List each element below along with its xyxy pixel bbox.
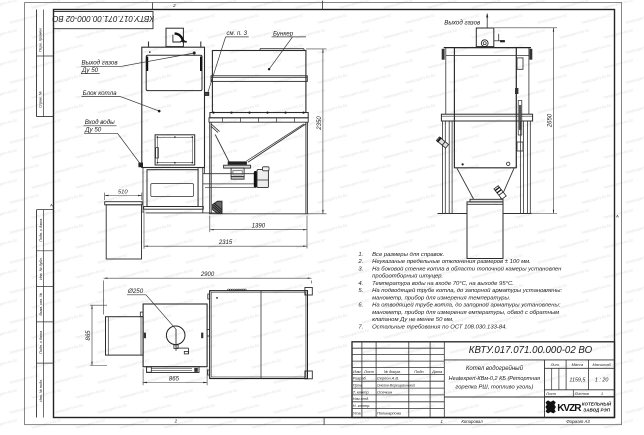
svg-text:Инв. № дубл.: Инв. № дубл. <box>39 257 43 280</box>
svg-text:Ду 50: Ду 50 <box>84 127 102 134</box>
svg-text:Т. контр.: Т. контр. <box>353 389 370 394</box>
svg-text:Остальные требования по ОСТ 10: Остальные требования по ОСТ 108.030.133-… <box>372 325 507 331</box>
svg-text:2350: 2350 <box>317 116 323 131</box>
svg-text:КВТУ.017.071.00.000-02 ВО: КВТУ.017.071.00.000-02 ВО <box>52 14 154 23</box>
svg-text:1 : 20: 1 : 20 <box>595 378 609 384</box>
svg-text:Все размеры для справок.: Все размеры для справок. <box>372 252 444 258</box>
svg-text:манометр, прибор для измерения: манометр, прибор для измерения температу… <box>372 295 510 301</box>
svg-text:Лист: Лист <box>545 391 557 396</box>
svg-text:Разраб.: Разраб. <box>353 376 367 381</box>
svg-text:1159,5: 1159,5 <box>569 378 586 384</box>
svg-text:Формат А3: Формат А3 <box>566 419 590 424</box>
svg-text:На отводящей трубе котла, до з: На отводящей трубе котла, до запорной ар… <box>372 302 561 309</box>
svg-text:Ду 50: Ду 50 <box>81 67 99 74</box>
svg-text:Осечкин: Осечкин <box>377 389 393 394</box>
svg-text:Лист: Лист <box>363 369 375 374</box>
svg-text:Листов: Листов <box>574 391 589 396</box>
svg-text:Подп. и дата: Подп. и дата <box>39 331 43 354</box>
svg-text:Вход воды: Вход воды <box>85 119 115 126</box>
svg-text:3.: 3. <box>358 266 363 272</box>
svg-text:А: А <box>50 203 53 208</box>
svg-text:клапаном Ду не менее 50 мм.: клапаном Ду не менее 50 мм. <box>372 317 454 323</box>
svg-text:Масштаб: Масштаб <box>593 362 612 367</box>
svg-text:На подводящей трубе котла, до: На подводящей трубе котла, до запорной а… <box>372 287 562 294</box>
svg-text:Пров.: Пров. <box>353 383 363 388</box>
svg-text:510: 510 <box>118 189 128 195</box>
svg-text:Бункер: Бункер <box>273 30 294 37</box>
svg-text:Неуказаные предельные отклонен: Неуказаные предельные отклонения размеро… <box>372 259 531 265</box>
svg-text:см. п. 3: см. п. 3 <box>227 31 248 37</box>
svg-text:Онегов-Верещагинский: Онегов-Верещагинский <box>377 384 415 388</box>
svg-text:пробоотборный штуцер.: пробоотборный штуцер. <box>372 273 443 280</box>
svg-text:Выход газов: Выход газов <box>444 20 481 27</box>
svg-text:Подп. и дата: Подп. и дата <box>39 219 43 242</box>
svg-text:2900: 2900 <box>200 272 215 278</box>
svg-text:Температура воды на входе 70°С: Температура воды на входе 70°С, на выход… <box>372 281 514 287</box>
svg-text:1.: 1. <box>358 252 363 258</box>
svg-text:Масса: Масса <box>572 362 584 367</box>
svg-text:Подп.: Подп. <box>414 369 424 374</box>
svg-text:Копировал: Копировал <box>461 419 483 424</box>
svg-text:2.: 2. <box>357 259 363 265</box>
svg-text:Изм: Изм <box>353 369 361 374</box>
svg-text:Heatexpert-КВм-0,2 КБ (Ретортн: Heatexpert-КВм-0,2 КБ (Ретортная <box>449 376 541 382</box>
svg-text:Инв. № подл.: Инв. № подл. <box>39 379 43 402</box>
svg-text:4.: 4. <box>358 281 363 287</box>
svg-text:Поликарпова: Поликарпова <box>377 411 402 416</box>
svg-text:Выход газов: Выход газов <box>82 59 119 66</box>
svg-text:Взам. инв. №: Взам. инв. № <box>39 293 43 316</box>
svg-text:КОТЕЛЬНЫЙ: КОТЕЛЬНЫЙ <box>582 399 612 406</box>
svg-text:2315: 2315 <box>218 240 233 246</box>
svg-text:KVZR: KVZR <box>557 403 582 414</box>
svg-text:Ø250: Ø250 <box>127 288 144 295</box>
svg-text:№ докум.: № докум. <box>384 369 401 374</box>
svg-text:На боковой стенке котла в обла: На боковой стенке котла в области топочн… <box>372 265 562 272</box>
svg-text:Н. контр.: Н. контр. <box>353 403 371 408</box>
svg-text:7.: 7. <box>358 325 363 331</box>
svg-text:горелка РШ, топливо уголь): горелка РШ, топливо уголь) <box>455 385 533 391</box>
svg-text:манометр, прибор для измерения: манометр, прибор для измерения емператур… <box>372 310 559 316</box>
svg-text:Перв. примен.: Перв. примен. <box>39 27 43 52</box>
svg-text:1: 1 <box>601 391 603 396</box>
svg-text:Сереон А.В.: Сереон А.В. <box>377 376 399 381</box>
svg-text:6.: 6. <box>358 303 363 309</box>
svg-text:2: 2 <box>172 3 176 8</box>
svg-text:865: 865 <box>169 376 180 382</box>
svg-text:Лит.: Лит. <box>550 362 560 367</box>
svg-text:КВТУ.017.071.00.000-02 ВО: КВТУ.017.071.00.000-02 ВО <box>469 345 593 356</box>
svg-text:865: 865 <box>86 330 92 341</box>
svg-text:2650: 2650 <box>547 113 553 128</box>
svg-text:Нач.отд.: Нач.отд. <box>353 396 369 401</box>
svg-text:Дата: Дата <box>431 369 443 374</box>
svg-text:ЗАВОД РЭП: ЗАВОД РЭП <box>583 408 610 413</box>
svg-text:Справ. №: Справ. № <box>39 91 43 108</box>
svg-text:2: 2 <box>174 419 178 424</box>
svg-text:Блок котла: Блок котла <box>83 90 117 97</box>
svg-text:Утв.: Утв. <box>353 411 362 416</box>
svg-text:5.: 5. <box>358 288 363 294</box>
svg-text:А: А <box>616 213 619 218</box>
svg-text:1390: 1390 <box>252 224 266 230</box>
svg-text:Котел водогрейный: Котел водогрейный <box>466 365 524 372</box>
